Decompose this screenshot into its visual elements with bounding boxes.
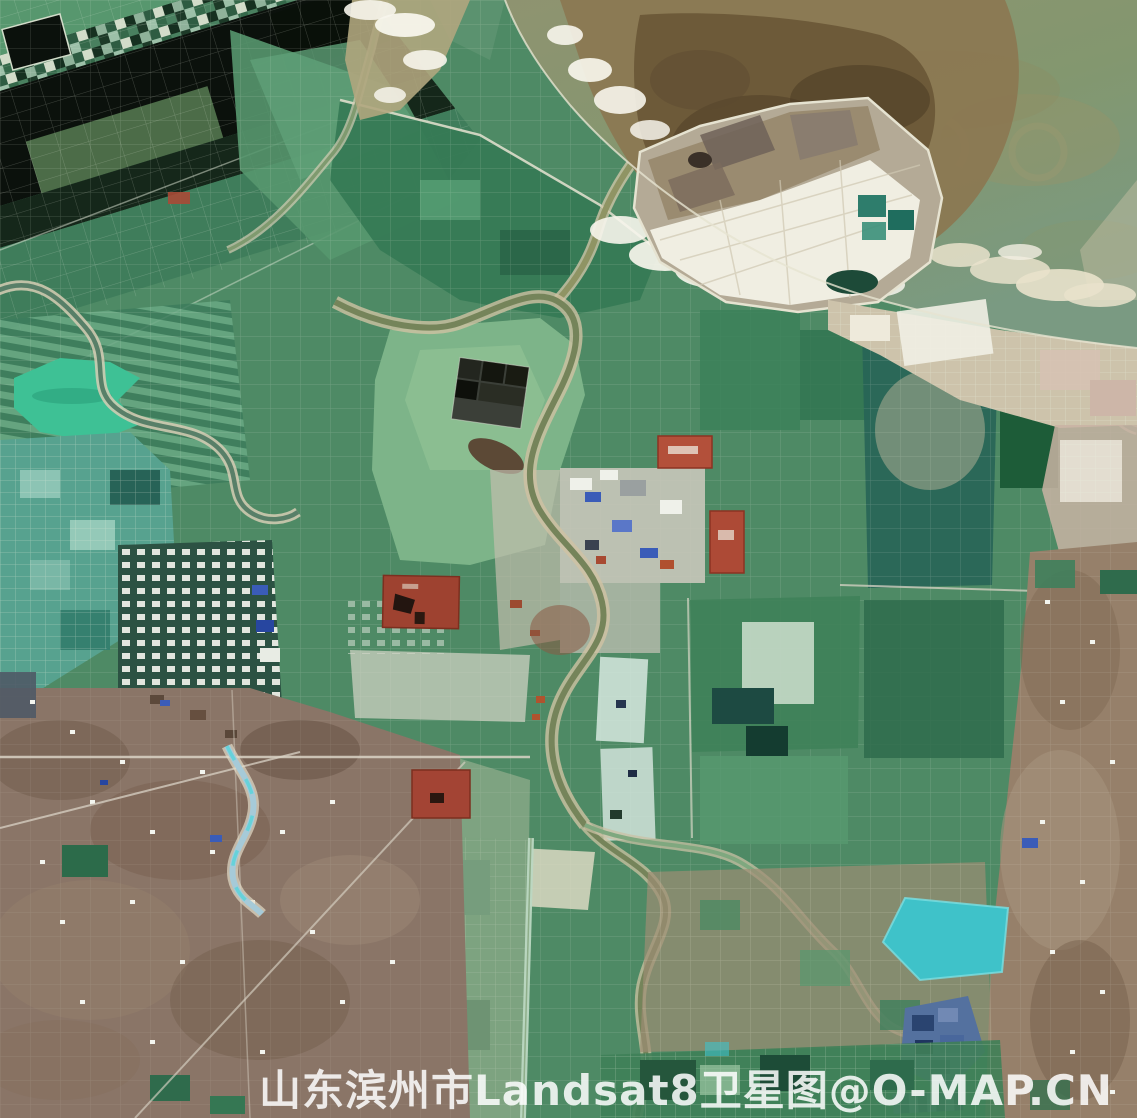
map-canvas [0, 0, 1137, 1118]
industrial-zone-red-4 [710, 511, 744, 573]
dark-pond-block [451, 357, 529, 428]
watermark-text: 山东滨州市Landsat8卫星图@O-MAP.CN [259, 1057, 1113, 1118]
industrial-zone-red-3 [658, 436, 712, 468]
industrial-zone-red-2 [412, 770, 470, 818]
white-pond-bands [596, 657, 656, 841]
red-hamlet [168, 192, 190, 204]
satellite-image: 山东滨州市Landsat8卫星图@O-MAP.CN [0, 0, 1137, 1118]
pink-salt-flats-east [1042, 425, 1137, 560]
industrial-zone-red-1 [383, 575, 460, 628]
